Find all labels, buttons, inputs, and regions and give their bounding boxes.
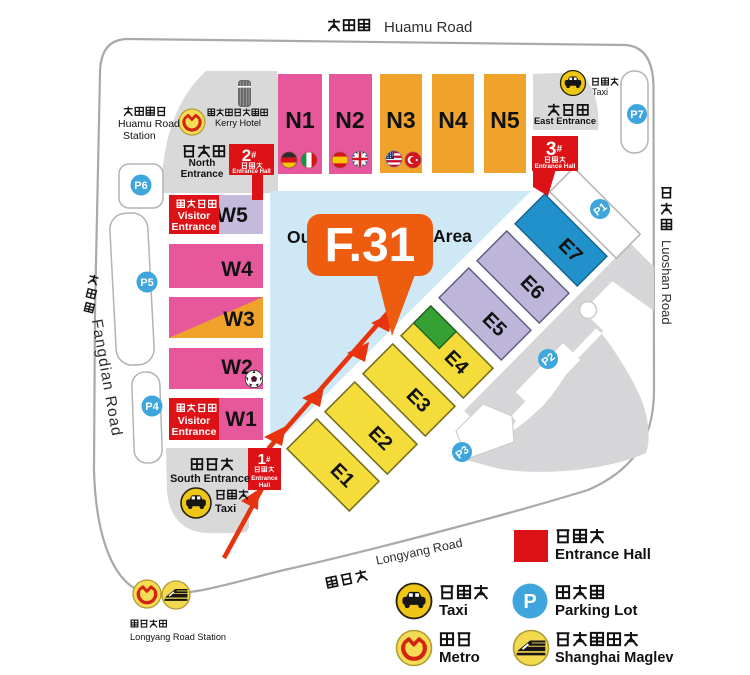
svg-text:Hall: Hall	[259, 482, 271, 489]
svg-text:Entrance: Entrance	[172, 426, 217, 438]
svg-text:F.31: F.31	[325, 219, 416, 272]
svg-text:Taxi: Taxi	[592, 87, 608, 97]
svg-text:Entrance Hall: Entrance Hall	[535, 163, 576, 170]
svg-text:Kerry Hotel: Kerry Hotel	[215, 118, 261, 128]
svg-text:North: North	[189, 158, 216, 169]
svg-text:Longyang Road Station: Longyang Road Station	[130, 632, 226, 642]
svg-text:East Entrance: East Entrance	[534, 116, 596, 126]
svg-text:Entrance: Entrance	[251, 475, 278, 482]
svg-text:N5: N5	[490, 107, 520, 133]
svg-text:Taxi: Taxi	[439, 602, 468, 619]
svg-text:Huamu Road: Huamu Road	[118, 118, 180, 130]
svg-text:W3: W3	[223, 308, 255, 331]
svg-text:W4: W4	[221, 258, 253, 281]
svg-text:Shanghai Maglev: Shanghai Maglev	[555, 650, 673, 666]
svg-text:Huamu Road: Huamu Road	[384, 19, 472, 36]
svg-text:P4: P4	[145, 401, 159, 413]
svg-text:Entrance Hall: Entrance Hall	[232, 169, 271, 175]
svg-text:South Entrance: South Entrance	[170, 473, 250, 485]
svg-text:N1: N1	[285, 107, 315, 133]
svg-text:Parking Lot: Parking Lot	[555, 602, 638, 619]
svg-text:Station: Station	[123, 130, 156, 142]
svg-text:Entrance Hall: Entrance Hall	[555, 546, 651, 563]
svg-text:W5: W5	[216, 204, 248, 227]
svg-text:Metro: Metro	[439, 649, 480, 666]
svg-text:N3: N3	[386, 107, 415, 133]
svg-text:N2: N2	[335, 107, 364, 133]
svg-text:P5: P5	[140, 277, 153, 289]
svg-text:Area: Area	[433, 226, 472, 246]
svg-text:P: P	[523, 591, 536, 613]
svg-text:P7: P7	[630, 109, 643, 121]
svg-text:Luoshan Road: Luoshan Road	[659, 240, 674, 325]
svg-text:Entrance: Entrance	[172, 221, 217, 233]
svg-text:P6: P6	[134, 180, 147, 192]
svg-text:Taxi: Taxi	[215, 503, 236, 515]
svg-text:W1: W1	[225, 408, 257, 431]
svg-text:Entrance: Entrance	[181, 169, 224, 180]
svg-text:N4: N4	[438, 107, 468, 133]
